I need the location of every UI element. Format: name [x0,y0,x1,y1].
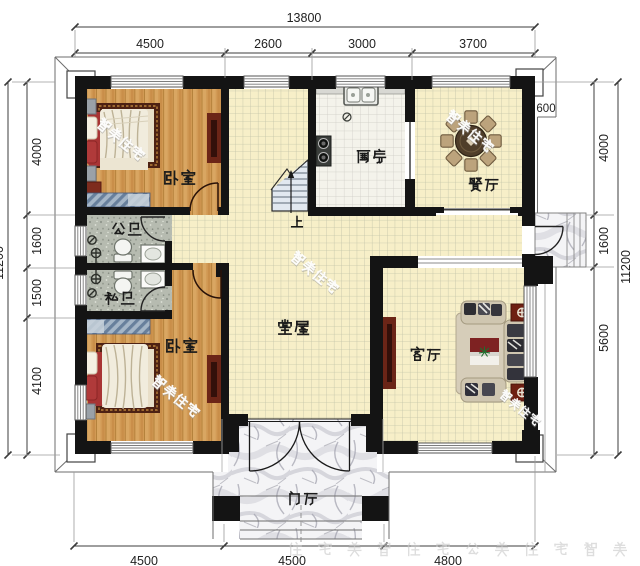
svg-text:3700: 3700 [459,37,487,51]
svg-text:2600: 2600 [254,37,282,51]
svg-text:4000: 4000 [30,138,44,166]
svg-text:1600: 1600 [597,227,611,255]
svg-text:13800: 13800 [287,11,322,25]
svg-text:11200: 11200 [0,246,6,280]
svg-text:1500: 1500 [30,279,44,307]
svg-text:11200: 11200 [619,250,633,284]
svg-text:4500: 4500 [136,37,164,51]
svg-text:4500: 4500 [130,554,158,566]
svg-text:3000: 3000 [348,37,376,51]
svg-text:4000: 4000 [597,134,611,162]
svg-text:5600: 5600 [597,324,611,352]
svg-text:4500: 4500 [278,554,306,566]
svg-text:4100: 4100 [30,367,44,395]
svg-text:1600: 1600 [30,227,44,255]
svg-text:4800: 4800 [434,554,462,566]
svg-text:600: 600 [536,103,555,115]
